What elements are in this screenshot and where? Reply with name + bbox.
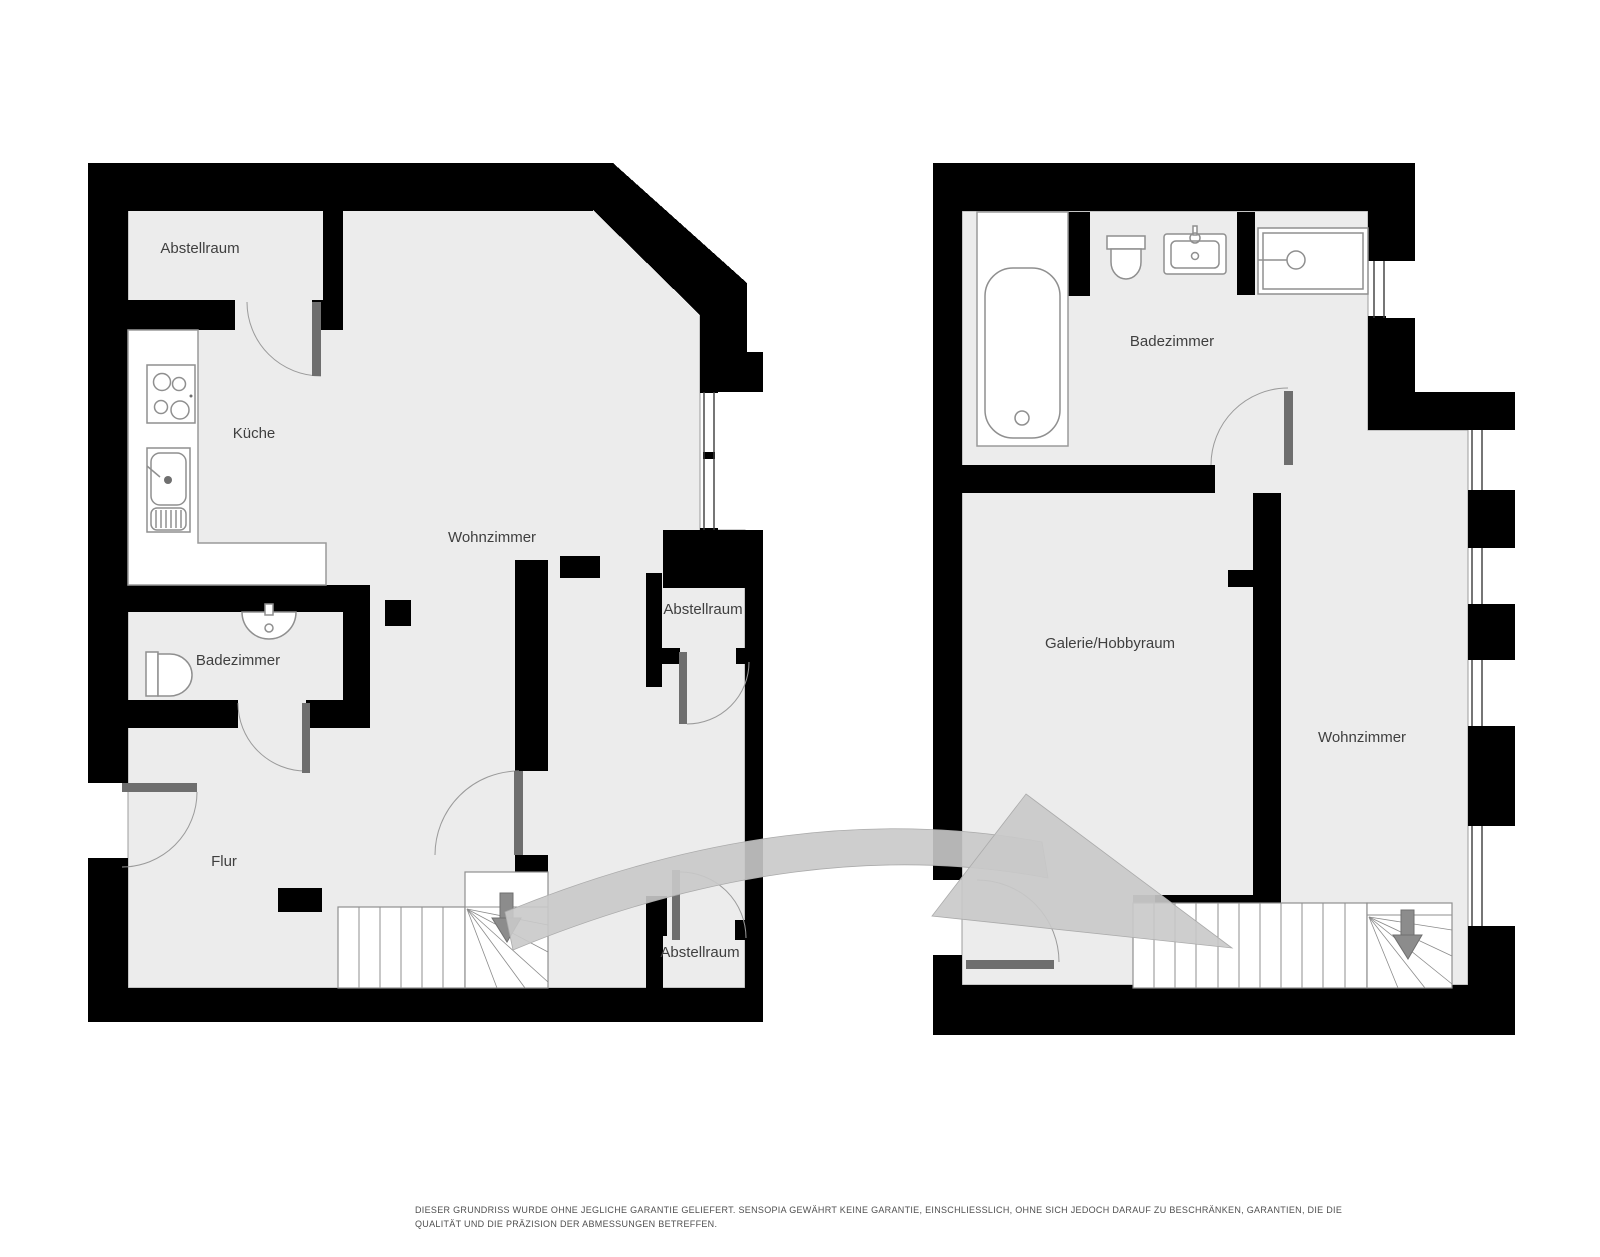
room-label-abstellraum-bottom: Abstellraum (660, 944, 739, 961)
disclaimer-line2: QUALITÄT UND DIE PRÄZISION DER ABMESSUNG… (415, 1219, 717, 1229)
floorplan-page: Abstellraum Küche Wohnzimmer Abstellraum… (0, 0, 1600, 1257)
disclaimer-line1: DIESER GRUNDRISS WURDE OHNE JEGLICHE GAR… (415, 1205, 1342, 1215)
disclaimer: DIESER GRUNDRISS WURDE OHNE JEGLICHE GAR… (415, 1205, 1342, 1229)
room-label-abstellraum-top: Abstellraum (160, 240, 239, 257)
room-label-galerie: Galerie/Hobbyraum (1045, 635, 1175, 652)
stove-icon (147, 365, 195, 423)
room-label-badezimmer-left: Badezimmer (196, 652, 280, 669)
room-label-wohnzimmer-left: Wohnzimmer (448, 529, 536, 546)
bathtub-icon (977, 212, 1068, 446)
room-label-kueche: Küche (233, 425, 276, 442)
shower-icon (1258, 228, 1368, 294)
room-label-flur: Flur (211, 853, 237, 870)
kitchen-sink-icon (147, 448, 190, 532)
window-icon (704, 392, 714, 530)
room-label-badezimmer-right: Badezimmer (1130, 333, 1214, 350)
room-label-wohnzimmer-right: Wohnzimmer (1318, 729, 1406, 746)
room-label-abstellraum-mid: Abstellraum (663, 601, 742, 618)
